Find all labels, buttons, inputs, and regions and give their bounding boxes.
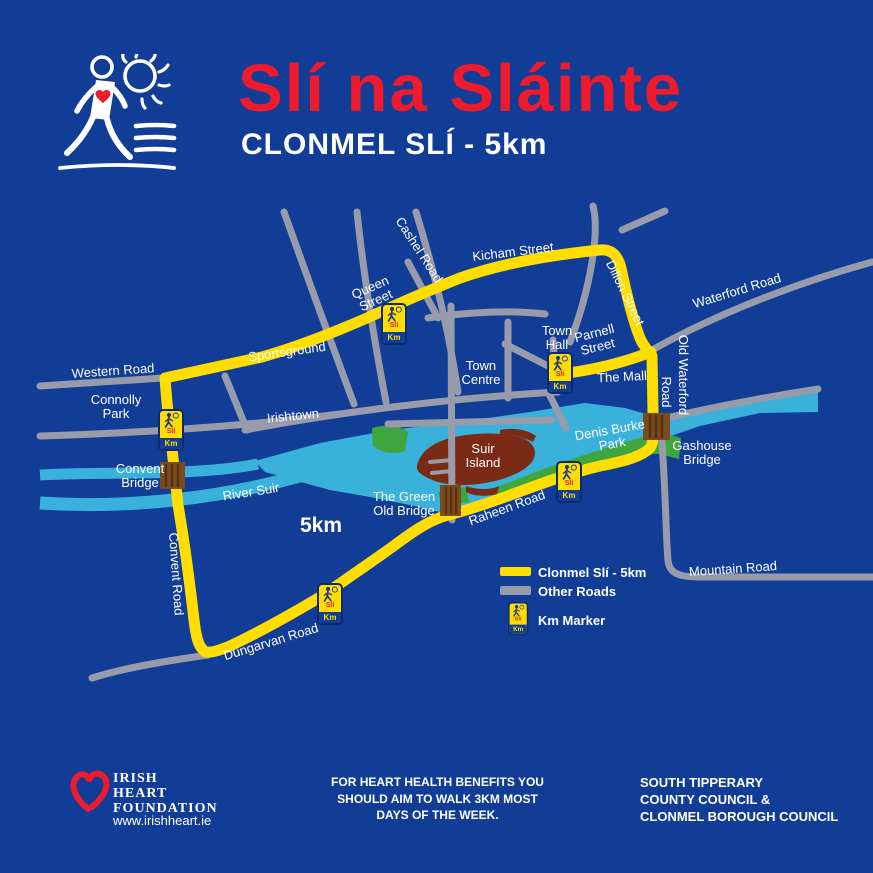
health-message: FOR HEART HEALTH BENEFITS YOU SHOULD AIM… <box>300 774 575 824</box>
place-label-town-centre: Town Centre <box>461 359 500 387</box>
km-marker-5: Slí Km <box>317 583 343 625</box>
place-label-town-hall: Town Hall <box>542 324 572 352</box>
legend-km-marker: Slí Km <box>508 602 528 635</box>
legend-roads-swatch <box>500 586 531 595</box>
km-marker-4: Slí Km <box>556 461 582 503</box>
walking-person-icon <box>385 306 403 323</box>
km-marker-sli-text: Slí <box>167 429 176 435</box>
road-label-old-waterford-road-2: Road <box>659 376 673 407</box>
km-marker-sli-text: Slí <box>556 372 565 378</box>
km-marker-km-text: Km <box>319 612 341 623</box>
gashouse-bridge-marker <box>643 413 670 440</box>
place-label-gashouse-bridge: Gashouse Bridge <box>672 439 731 467</box>
road-label-old-waterford-road: Old Waterford <box>676 335 690 415</box>
poster: Slí na Sláinte CLONMEL SLÍ - 5km <box>0 0 873 873</box>
walking-person-icon <box>162 412 180 429</box>
councils-credit: SOUTH TIPPERARY COUNTY COUNCIL & CLONMEL… <box>640 774 838 825</box>
km-marker-1: Slí Km <box>381 303 407 345</box>
walking-person-icon <box>560 464 578 481</box>
km-marker-sli-text: Slí <box>515 618 522 623</box>
walking-person-icon <box>551 355 569 372</box>
legend-route-swatch <box>500 567 531 576</box>
walking-person-icon <box>511 604 525 617</box>
place-label-suir-island: Suir Island <box>466 442 501 470</box>
km-marker-km-text: Km <box>510 625 527 634</box>
legend-roads-label: Other Roads <box>538 584 616 599</box>
irish-heart-foundation-logo <box>68 768 110 814</box>
km-marker-3: Slí Km <box>158 409 184 451</box>
scale-label-5km: 5km <box>300 515 342 537</box>
legend-route-label: Clonmel Slí - 5km <box>538 565 646 580</box>
place-label-the-green-old-bridge: The Green Old Bridge <box>373 490 435 518</box>
foundation-name: IRISH HEART FOUNDATION <box>113 772 218 817</box>
place-label-convent-bridge: Convent Bridge <box>116 462 164 490</box>
km-marker-sli-text: Slí <box>565 481 574 487</box>
heart-icon <box>73 774 106 809</box>
place-label-connolly-park: Connolly Park <box>91 393 142 421</box>
km-marker-km-text: Km <box>383 332 405 343</box>
map-graphic <box>0 0 873 873</box>
old-bridge-marker <box>440 485 461 516</box>
legend-km-marker-label: Km Marker <box>538 613 605 628</box>
km-marker-km-text: Km <box>160 438 182 449</box>
foundation-url: www.irishheart.ie <box>113 813 211 828</box>
walking-person-icon <box>321 586 339 603</box>
km-marker-sli-text: Slí <box>390 323 399 329</box>
km-marker-km-text: Km <box>558 490 580 501</box>
km-marker-km-text: Km <box>549 381 571 392</box>
km-marker-sli-text: Slí <box>326 603 335 609</box>
km-marker-2: Slí Km <box>547 352 573 394</box>
road-label-the-mall: The Mall <box>597 369 648 385</box>
